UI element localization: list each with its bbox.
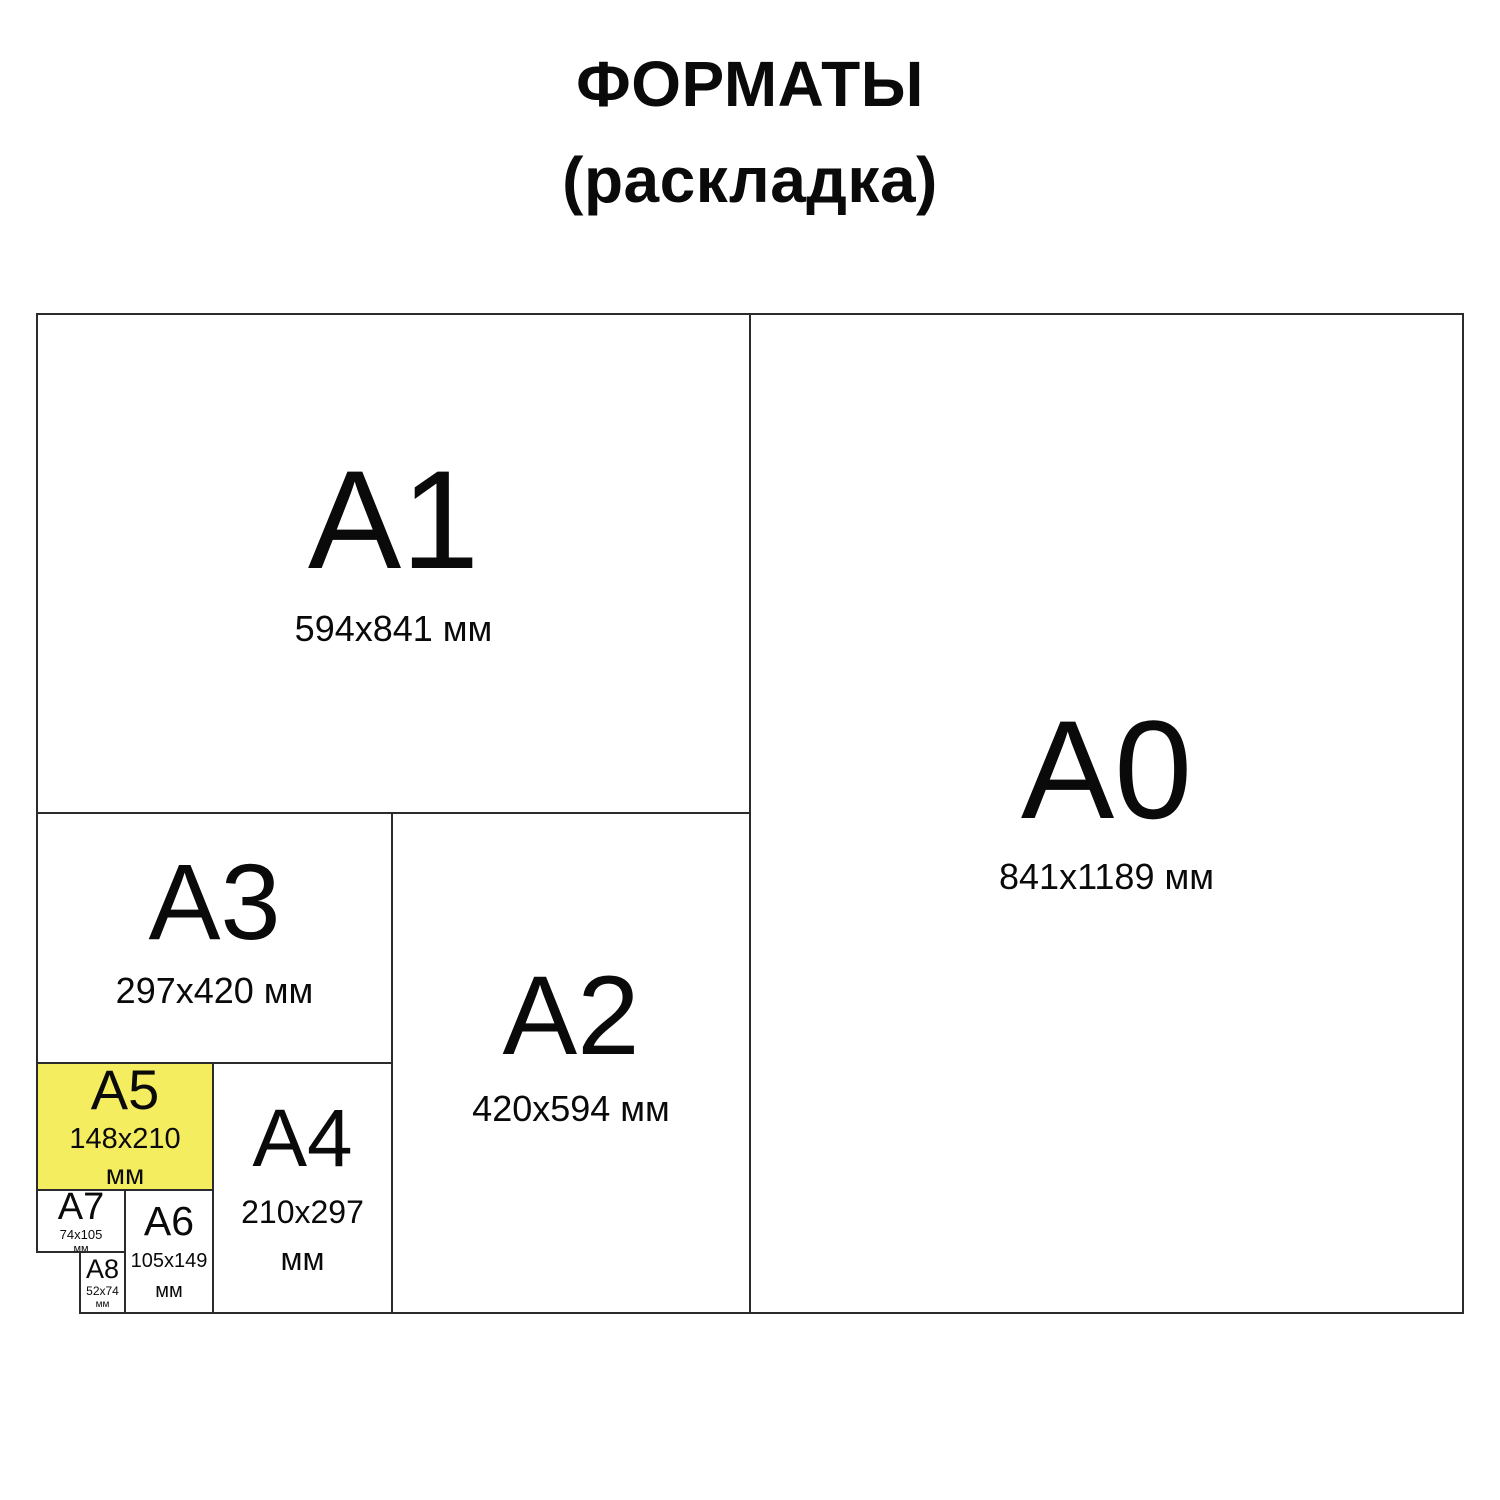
format-box-a7: A7 74x105 мм: [36, 1189, 126, 1253]
page-title-line1: ФОРМАТЫ: [0, 36, 1500, 132]
format-box-a5-highlighted: A5 148x210 мм: [36, 1062, 214, 1191]
format-box-a8: A8 52x74 мм: [79, 1251, 126, 1314]
format-box-a6: A6 105x149 мм: [124, 1189, 214, 1314]
formats-diagram: ФОРМАТЫ (раскладка) A1 594x841 мм A0 841…: [0, 0, 1500, 1500]
format-box-a2: A2 420x594 мм: [391, 812, 751, 1314]
format-size-a3: 297x420 мм: [116, 970, 314, 1012]
format-size-a0: 841x1189 мм: [999, 856, 1214, 898]
format-size-a1: 594x841 мм: [295, 608, 493, 650]
format-size-a4: 210x297: [241, 1194, 364, 1231]
format-size-a5: 148x210: [69, 1123, 180, 1156]
page-title-line2: (раскладка): [0, 132, 1500, 228]
format-size-a6: 105x149: [131, 1250, 208, 1273]
format-label-a7: A7: [58, 1188, 104, 1226]
format-size-a8: 52x74: [86, 1284, 119, 1298]
format-label-a6: A6: [144, 1201, 194, 1242]
format-label-a4: A4: [252, 1098, 352, 1180]
format-box-a4: A4 210x297 мм: [212, 1062, 393, 1314]
format-size-unit-a6: мм: [155, 1280, 183, 1303]
format-size-a7: 74x105: [60, 1227, 103, 1242]
format-label-a3: A3: [148, 848, 280, 956]
format-size-unit-a8: мм: [96, 1299, 110, 1310]
format-box-a1: A1 594x841 мм: [36, 313, 751, 814]
page-title: ФОРМАТЫ (раскладка): [0, 36, 1500, 228]
format-label-a2: A2: [503, 960, 640, 1072]
format-box-a0: A0 841x1189 мм: [749, 313, 1464, 1314]
format-label-a0: A0: [1021, 700, 1192, 840]
format-label-a8: A8: [86, 1256, 119, 1283]
format-label-a1: A1: [308, 450, 479, 590]
format-box-a3: A3 297x420 мм: [36, 812, 393, 1064]
format-size-a2: 420x594 мм: [472, 1088, 670, 1130]
format-label-a5: A5: [91, 1062, 160, 1118]
format-size-unit-a4: мм: [281, 1241, 325, 1278]
format-size-unit-a5: мм: [106, 1159, 145, 1191]
